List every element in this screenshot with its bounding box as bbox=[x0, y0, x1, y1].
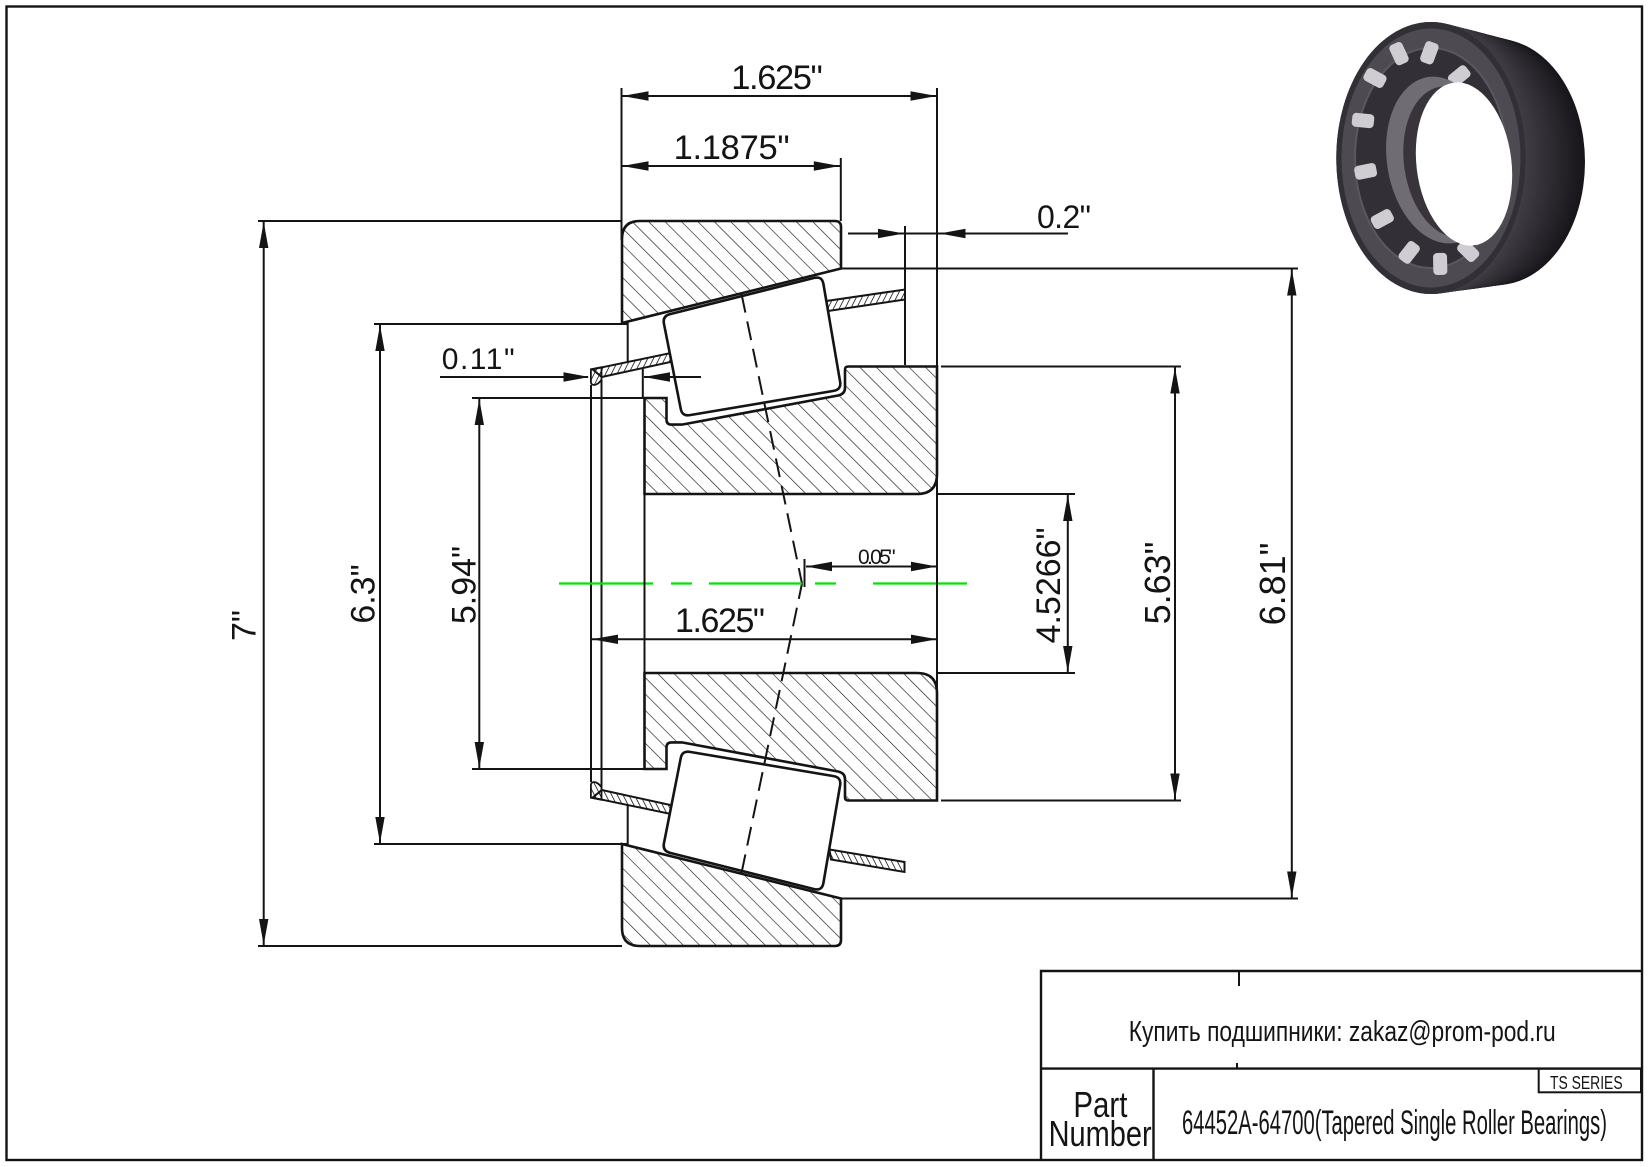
svg-text:0.05": 0.05" bbox=[858, 546, 896, 569]
svg-text:1.1875": 1.1875" bbox=[674, 129, 790, 167]
svg-text:5.63": 5.63" bbox=[1137, 542, 1178, 625]
svg-text:Number: Number bbox=[1049, 1113, 1152, 1154]
svg-text:4.5266": 4.5266" bbox=[1030, 527, 1068, 643]
svg-text:1.625": 1.625" bbox=[675, 602, 765, 640]
svg-text:64452A-64700(Tapered Single Ro: 64452A-64700(Tapered Single Roller Beari… bbox=[1182, 1104, 1607, 1142]
svg-text:6.81": 6.81" bbox=[1252, 543, 1293, 626]
svg-text:6.3": 6.3" bbox=[345, 564, 383, 623]
svg-text:0.2": 0.2" bbox=[1037, 199, 1091, 235]
svg-text:7": 7" bbox=[226, 610, 264, 641]
svg-text:5.94": 5.94" bbox=[446, 546, 484, 624]
svg-text:TS SERIES: TS SERIES bbox=[1550, 1073, 1623, 1093]
svg-text:Купить подшипники: zakaz@prom-: Купить подшипники: zakaz@prom-pod.ru bbox=[1129, 1016, 1556, 1048]
svg-text:0.11": 0.11" bbox=[442, 343, 515, 376]
svg-text:1.625": 1.625" bbox=[731, 59, 822, 97]
